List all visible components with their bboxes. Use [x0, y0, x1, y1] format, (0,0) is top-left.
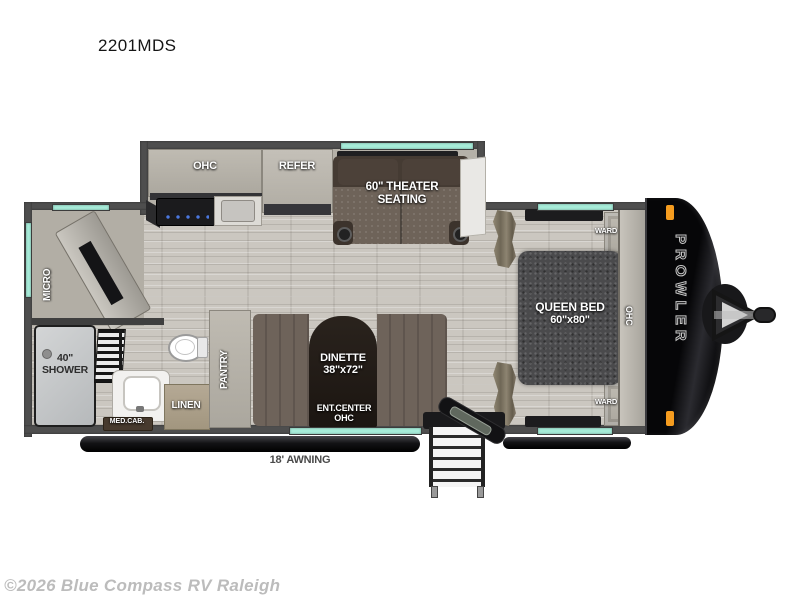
pantry-label: PANTRY — [219, 332, 230, 408]
cooktop — [156, 198, 216, 226]
kitchen-ohc-label: OHC — [160, 160, 250, 172]
kitchen-sink — [221, 200, 255, 222]
queen-bed-line2: 60"x80" — [550, 314, 590, 326]
dinette-label: DINETTE 38"x72" — [310, 352, 376, 377]
copyright-watermark: ©2026 Blue Compass RV Raleigh — [4, 576, 280, 596]
cooktop-knobs — [163, 215, 209, 219]
window-rear-left — [25, 222, 32, 298]
bed-shelf-bottom — [525, 416, 601, 427]
micro-label: MICRO — [42, 258, 53, 312]
window-dinette — [289, 427, 422, 435]
entry-steps — [429, 427, 485, 487]
vanity-faucet — [136, 406, 144, 412]
model-title: 2201MDS — [98, 36, 176, 56]
awning-bar-front — [503, 437, 631, 449]
bathroom-wall — [32, 318, 164, 325]
window-bedroom-top — [537, 203, 614, 211]
awning-bar — [80, 436, 420, 452]
queen-bed-label: QUEEN BED 60"x80" — [520, 301, 620, 327]
dinette-label-line2: 38"x72" — [323, 364, 363, 376]
dinette-bench-left — [253, 314, 309, 426]
hitch-crossbar — [714, 311, 756, 319]
shower-label: 40" SHOWER — [36, 353, 94, 377]
marker-light-bottom — [666, 411, 674, 426]
step-foot-left — [431, 486, 438, 498]
dinette-bench-right — [377, 314, 447, 426]
theater-label-line2: SEATING — [378, 194, 427, 207]
awning-label: 18' AWNING — [240, 454, 360, 466]
dinette-label-line1: DINETTE — [320, 352, 366, 364]
hitch — [712, 288, 776, 342]
toilet-bowl — [175, 339, 195, 355]
ent-center-line1: ENT.CENTER — [317, 403, 372, 413]
queen-bed-line1: QUEEN BED — [535, 301, 605, 314]
cupholder-left — [337, 227, 352, 242]
kitchen-ohc-cabinet — [148, 149, 262, 197]
med-cab-label: MED.CAB. — [103, 418, 151, 426]
window-bedroom-bottom — [537, 427, 613, 435]
marker-light-top — [666, 205, 674, 220]
ent-center-label: ENT.CENTER OHC — [310, 403, 378, 423]
refer-label: REFER — [266, 160, 328, 172]
floorplan-page: 2201MDS OHC REFER 60" THEATER SEATING MI… — [0, 0, 800, 600]
toilet-tank — [197, 337, 208, 358]
window-kitchen-slide — [340, 142, 474, 150]
shower-label-line1: 40" — [57, 353, 73, 365]
prowler-brand-label: PROWLER — [672, 234, 689, 402]
ent-center-line2: OHC — [334, 413, 353, 423]
theater-label: 60" THEATER SEATING — [338, 181, 466, 207]
theater-label-line1: 60" THEATER — [366, 181, 439, 194]
shower-label-line2: SHOWER — [42, 365, 88, 377]
bedroom-ohc-label: OHC — [624, 298, 634, 334]
refer-base — [264, 204, 331, 215]
step-foot-right — [477, 486, 484, 498]
window-rear-top — [52, 204, 110, 211]
linen-label: LINEN — [164, 384, 208, 428]
hitch-coupler — [754, 308, 775, 322]
